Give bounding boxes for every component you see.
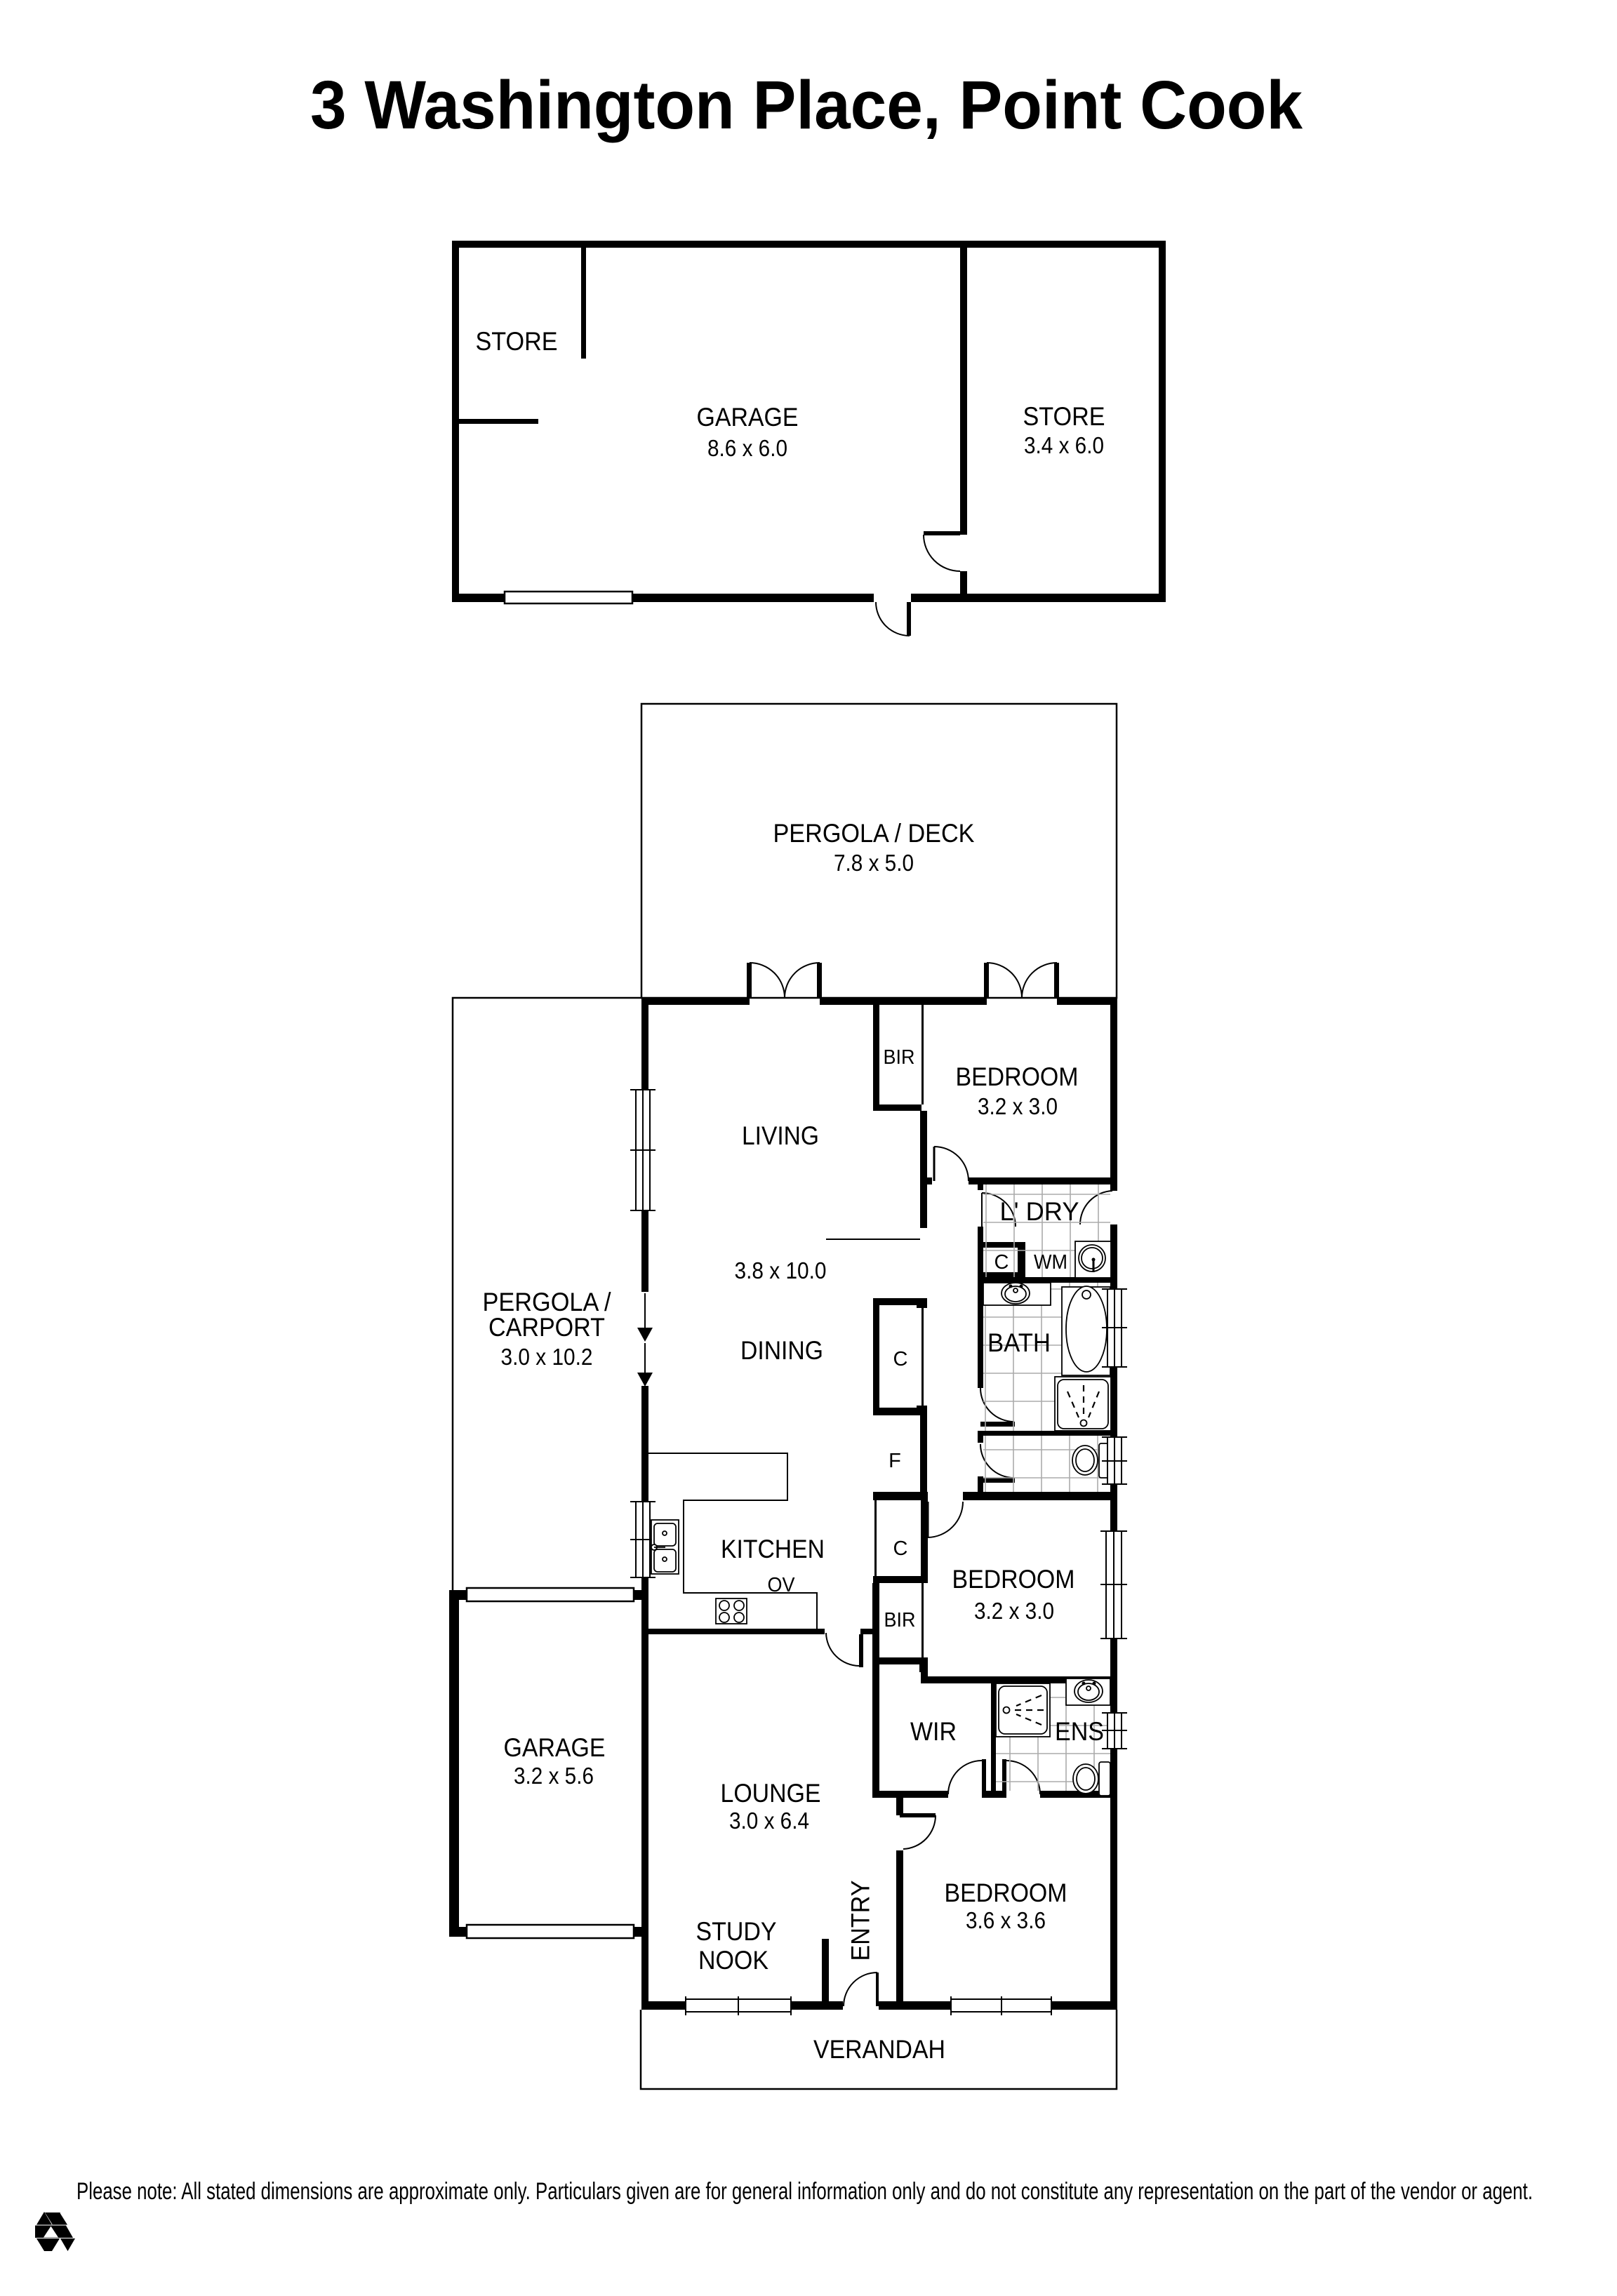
svg-text:BIR: BIR xyxy=(884,1609,916,1631)
svg-text:BEDROOM: BEDROOM xyxy=(956,1062,1079,1091)
svg-text:KITCHEN: KITCHEN xyxy=(721,1535,825,1563)
svg-text:LIVING: LIVING xyxy=(742,1121,819,1150)
svg-text:BEDROOM: BEDROOM xyxy=(945,1878,1067,1907)
svg-text:3.2 x 5.6: 3.2 x 5.6 xyxy=(514,1763,594,1789)
svg-text:3.2 x 3.0: 3.2 x 3.0 xyxy=(978,1093,1058,1119)
svg-text:PERGOLA / DECK: PERGOLA / DECK xyxy=(773,819,975,848)
svg-text:3.0 x 6.4: 3.0 x 6.4 xyxy=(729,1808,809,1834)
svg-text:3.2 x 3.0: 3.2 x 3.0 xyxy=(974,1598,1054,1624)
svg-text:WIR: WIR xyxy=(910,1717,957,1746)
svg-text:3.8 x 10.0: 3.8 x 10.0 xyxy=(735,1257,827,1283)
svg-text:GARAGE: GARAGE xyxy=(504,1733,606,1762)
svg-text:STORE: STORE xyxy=(476,327,558,356)
svg-text:GARAGE: GARAGE xyxy=(697,403,799,432)
svg-text:WM: WM xyxy=(1034,1251,1067,1274)
svg-text:3.0 x 10.2: 3.0 x 10.2 xyxy=(501,1344,593,1370)
svg-text:ENS: ENS xyxy=(1055,1717,1104,1746)
svg-text:F: F xyxy=(889,1450,901,1472)
svg-text:C: C xyxy=(893,1348,908,1370)
svg-text:PERGOLA /: PERGOLA / xyxy=(483,1288,612,1316)
svg-text:C: C xyxy=(994,1251,1009,1274)
svg-text:7.8 x 5.0: 7.8 x 5.0 xyxy=(834,850,914,876)
svg-text:BEDROOM: BEDROOM xyxy=(952,1565,1075,1594)
svg-text:CARPORT: CARPORT xyxy=(488,1313,605,1342)
svg-text:ENTRY: ENTRY xyxy=(846,1881,875,1961)
svg-text:STUDY: STUDY xyxy=(696,1917,777,1946)
svg-text:STORE: STORE xyxy=(1023,402,1105,431)
svg-text:BIR: BIR xyxy=(884,1046,915,1069)
svg-text:C: C xyxy=(893,1537,908,1560)
svg-text:Please note: All stated dimens: Please note: All stated dimensions are a… xyxy=(76,2178,1533,2205)
svg-text:OV: OV xyxy=(768,1574,796,1596)
svg-text:3 Washington Place, Point Cook: 3 Washington Place, Point Cook xyxy=(310,67,1303,143)
svg-text:L' DRY: L' DRY xyxy=(1000,1197,1079,1226)
svg-text:BATH: BATH xyxy=(987,1328,1051,1357)
svg-text:VERANDAH: VERANDAH xyxy=(813,2035,945,2064)
svg-text:3.6 x 3.6: 3.6 x 3.6 xyxy=(966,1907,1046,1933)
svg-text:DINING: DINING xyxy=(740,1336,823,1365)
svg-text:LOUNGE: LOUNGE xyxy=(721,1779,821,1808)
svg-text:3.4 x 6.0: 3.4 x 6.0 xyxy=(1024,432,1104,458)
svg-text:NOOK: NOOK xyxy=(698,1946,768,1975)
svg-text:8.6 x 6.0: 8.6 x 6.0 xyxy=(707,435,787,461)
